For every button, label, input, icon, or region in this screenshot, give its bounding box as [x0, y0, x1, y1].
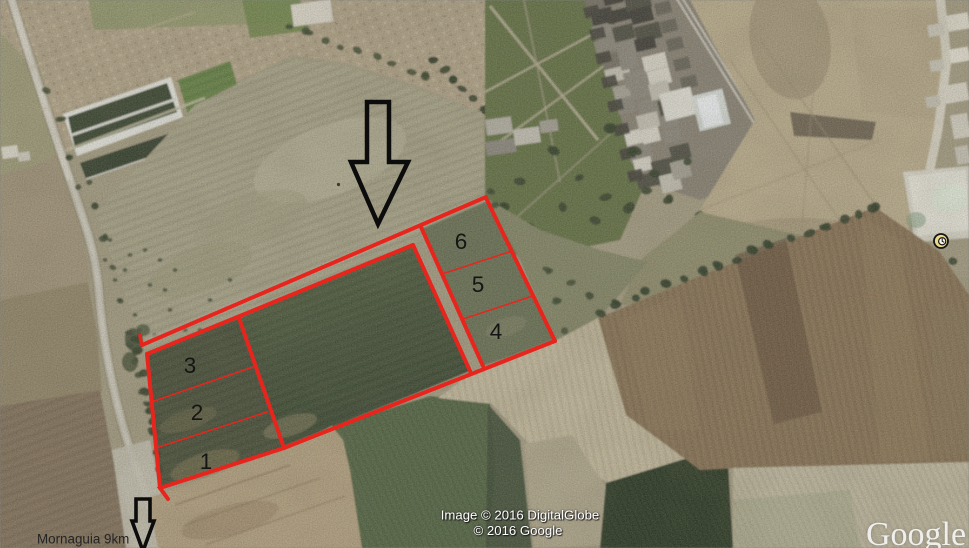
svg-text:Image © 2016 DigitalGlobe: Image © 2016 DigitalGlobe	[441, 508, 600, 523]
svg-text:5: 5	[472, 272, 485, 297]
svg-text:Mornaguia 9km: Mornaguia 9km	[37, 532, 129, 547]
svg-text:1: 1	[200, 449, 213, 474]
svg-text:2: 2	[191, 400, 204, 425]
svg-text:6: 6	[455, 229, 468, 254]
svg-text:Google: Google	[866, 516, 966, 548]
svg-text:4: 4	[490, 319, 503, 344]
svg-text:3: 3	[184, 353, 197, 378]
svg-text:© 2016 Google: © 2016 Google	[474, 523, 563, 538]
